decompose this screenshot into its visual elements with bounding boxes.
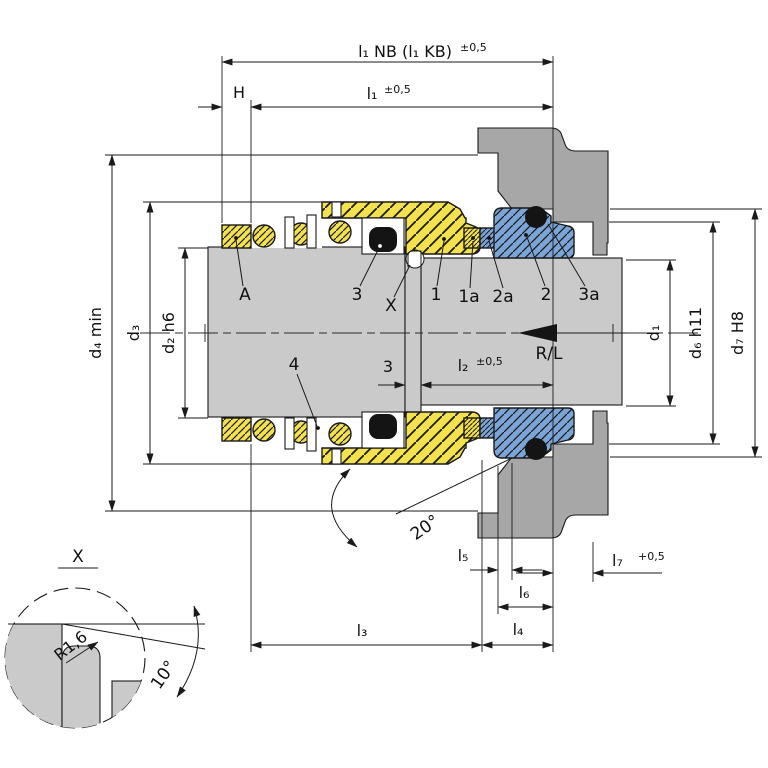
part-label-1a: 1a: [458, 287, 479, 307]
dim-label-d6: d₆ h11: [686, 307, 705, 359]
dim-label-snap-ring-width: 3: [383, 357, 393, 376]
angle-20-arc: [332, 469, 357, 547]
dim-label-l2: l₂: [458, 356, 469, 375]
body-slot-upper: [332, 202, 341, 217]
dim-label-h: H: [233, 83, 245, 102]
dim-label-l3: l₃: [357, 621, 368, 640]
oring-3-upper: [369, 227, 397, 252]
part-label-3: 3: [352, 285, 363, 305]
seal-face-1a-lower: [464, 418, 480, 438]
part-label-1: 1: [431, 285, 442, 305]
dim-label-d2: d₂ h6: [159, 312, 178, 354]
spring-retainer-lower: [307, 418, 316, 451]
dim-tol-l1: ±0,5: [384, 83, 411, 96]
body-slot-lower: [332, 449, 341, 464]
part-label-4: 4: [289, 355, 300, 375]
angle-20-chamfer-line: [396, 458, 512, 514]
dim-label-l1: l₁: [367, 84, 378, 103]
part-label-2: 2: [541, 285, 552, 305]
spring-coil: [253, 225, 275, 247]
part-label-3a: 3a: [578, 285, 599, 305]
technical-drawing-page: l₁ NB (l₁ KB) ±0,5 l₁ ±0,5 H l₂ ±0,5 3 l…: [0, 0, 768, 768]
shaft-right-section: [421, 258, 622, 405]
spring-coil: [253, 419, 275, 441]
dim-tol-l1nb: ±0,5: [460, 41, 487, 54]
dim-label-d4: d₄ min: [86, 307, 105, 359]
seal-section-drawing: l₁ NB (l₁ KB) ±0,5 l₁ ±0,5 H l₂ ±0,5 3 l…: [0, 0, 768, 768]
dim-label-l4: l₄: [513, 620, 524, 639]
dim-label-d7: d₇ H8: [728, 311, 747, 355]
spring-retainer-lower: [285, 418, 294, 449]
dim-tol-l7: +0,5: [638, 550, 665, 563]
collar-A-lower: [222, 418, 251, 441]
angle-10-label: 10°: [147, 657, 181, 693]
rotation-label: R/L: [535, 344, 563, 364]
oring-3-lower: [369, 414, 397, 439]
dim-label-l7: l₇: [612, 551, 623, 570]
dim-label-d1: d₁: [644, 325, 663, 342]
dim-tol-l2: ±0,5: [476, 355, 503, 368]
dim-label-d3: d₃: [124, 325, 143, 342]
spring-coil: [329, 221, 351, 243]
shaft-left-section: [208, 247, 405, 417]
dim-label-l5: l₅: [458, 546, 469, 565]
oring-3a-upper: [525, 206, 547, 228]
dim-label-l1nb: l₁ NB (l₁ KB): [358, 42, 452, 61]
spring-retainer-upper: [307, 215, 316, 248]
oring-3a-lower: [525, 438, 547, 460]
spring-retainer-upper: [285, 217, 294, 248]
part-label-A: A: [239, 285, 251, 305]
angle-20-label: 20°: [407, 511, 443, 545]
detail-x-title: X: [72, 547, 84, 567]
dim-label-l6: l₆: [519, 583, 530, 602]
part-label-2a: 2a: [492, 287, 513, 307]
part-label-X: X: [385, 296, 397, 316]
angle-10-arc: [177, 606, 198, 697]
spring-coil: [329, 423, 351, 445]
